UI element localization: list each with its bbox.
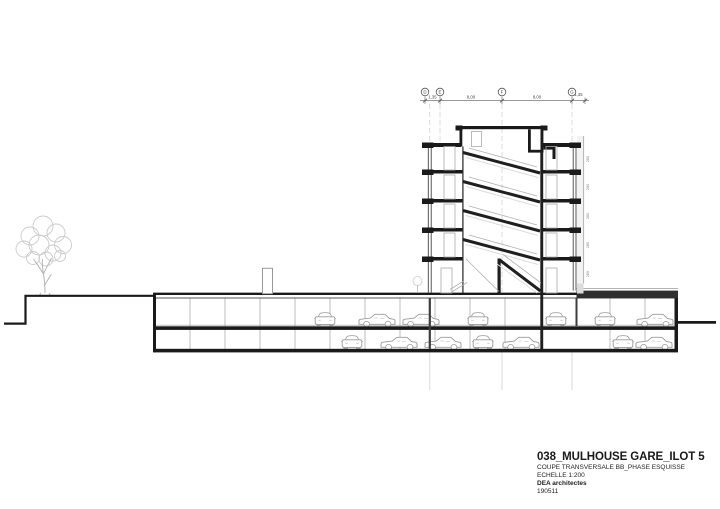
story-dim-label: 280 <box>586 242 590 248</box>
car-front <box>341 336 363 349</box>
section-drawing: 280 280 280 280 280 1,35 8,00 8,00 1,35 <box>0 0 720 509</box>
parking-right-wall <box>675 294 679 352</box>
grid-bubble-label: E <box>439 90 442 95</box>
car-side <box>381 337 417 350</box>
grid-bubble-label: D <box>423 90 426 95</box>
dim-label: 1,35 <box>428 95 437 100</box>
grid-bubble-label: G <box>570 90 574 95</box>
story-dim-label: 280 <box>586 184 590 190</box>
cars-lower-level <box>341 336 672 351</box>
car-front <box>545 313 567 326</box>
tower-section: 280 280 280 280 280 <box>413 126 590 350</box>
story-dimensions: 280 280 280 280 280 <box>586 156 590 277</box>
car-side <box>636 337 672 350</box>
podium-vent-shaft <box>263 268 273 293</box>
firm-name: DEA architectes <box>537 480 712 488</box>
story-dim-label: 280 <box>586 213 590 219</box>
car-front <box>472 336 494 349</box>
car-front <box>612 336 634 349</box>
tree <box>16 216 72 296</box>
dim-label: 8,00 <box>533 95 542 100</box>
drawing-date: 190511 <box>537 488 712 496</box>
stair-flights <box>463 153 541 292</box>
staircase <box>450 148 541 293</box>
story-dim-label: 280 <box>586 271 590 277</box>
drawing-name: COUPE TRANSVERSALE BB_PHASE ESQUISSE <box>537 464 712 472</box>
terrain-left <box>4 296 154 324</box>
parking-left-wall <box>153 294 156 352</box>
grid-bubbles: D E F G <box>421 88 576 96</box>
car-front <box>594 313 616 326</box>
dim-label: 8,00 <box>467 95 476 100</box>
drawing-sheet: 280 280 280 280 280 1,35 8,00 8,00 1,35 <box>0 0 720 509</box>
drawing-scale: ECHELLE 1:200 <box>537 472 712 480</box>
title-block: 038_MULHOUSE GARE_ILOT 5 COUPE TRANSVERS… <box>537 450 712 496</box>
grid-bubble-label: F <box>501 90 504 95</box>
entrance-shrub <box>413 277 422 294</box>
car-front <box>314 313 336 326</box>
floor-slabs <box>431 143 574 261</box>
story-dim-label: 280 <box>586 156 590 162</box>
shaft-right-wall <box>540 152 543 350</box>
penthouse-door <box>472 132 482 147</box>
car-side <box>503 337 539 350</box>
top-dimension-line: 1,35 8,00 8,00 1,35 D E F G <box>420 88 589 104</box>
deck-slab-right <box>577 291 679 299</box>
parking-structure <box>153 268 678 352</box>
ground-floor-wall <box>498 259 501 294</box>
project-title: 038_MULHOUSE GARE_ILOT 5 <box>537 450 712 464</box>
